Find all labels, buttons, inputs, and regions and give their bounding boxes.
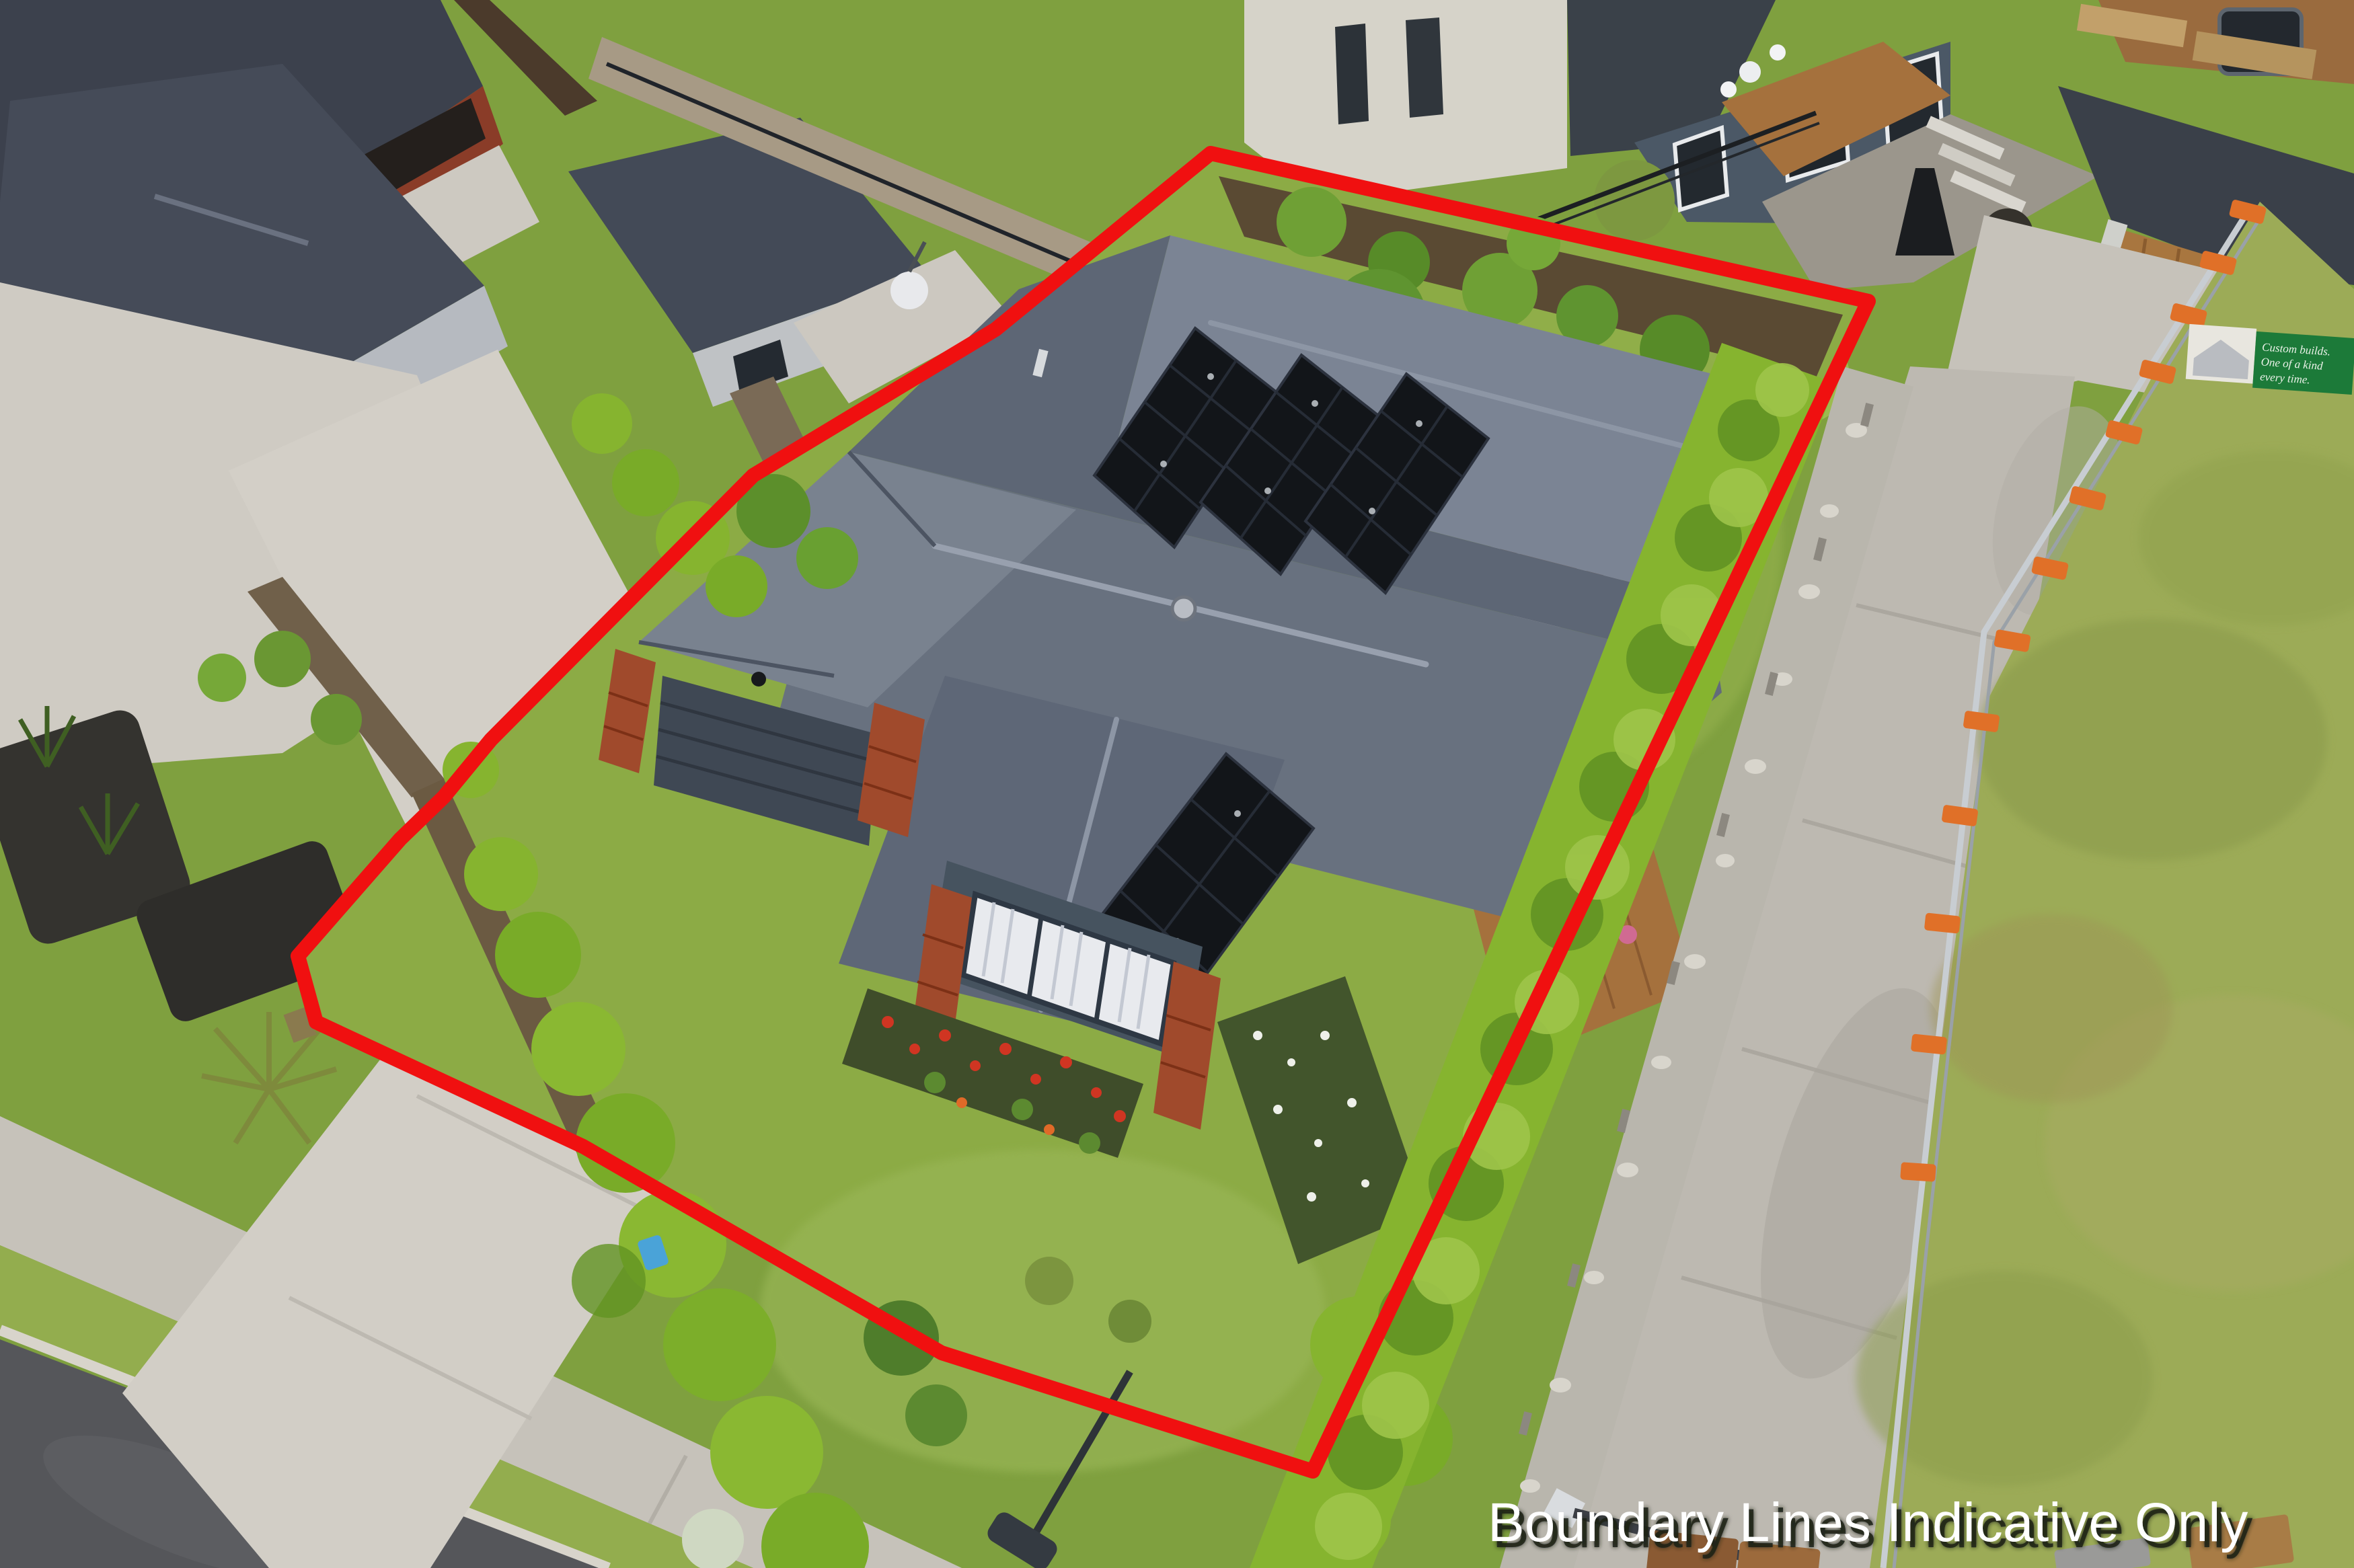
roof-fitting (751, 672, 766, 687)
verge-shrub (905, 1384, 967, 1446)
bistro-chair (1720, 81, 1737, 97)
white-flowering-bush (682, 1509, 744, 1568)
aerial-photo-canvas: Custom builds. One of a kind every time. (0, 0, 2354, 1568)
front-lawn-highlight (760, 1150, 1325, 1473)
cream-house-window (1406, 17, 1443, 118)
bistro-chair (1770, 44, 1786, 61)
verge-shrub (1025, 1257, 1073, 1305)
verge-shrub (1108, 1300, 1151, 1343)
hanging-egg-chair (890, 272, 928, 309)
watermark: Boundary Lines Indicative Only Boundary … (1488, 1492, 2252, 1559)
bistro-table (1739, 61, 1761, 83)
roof-vent (1172, 597, 1195, 620)
watermark-text: Boundary Lines Indicative Only (1488, 1492, 2248, 1553)
cream-house-window (1335, 24, 1369, 124)
aerial-photo: Custom builds. One of a kind every time. (0, 0, 2354, 1568)
